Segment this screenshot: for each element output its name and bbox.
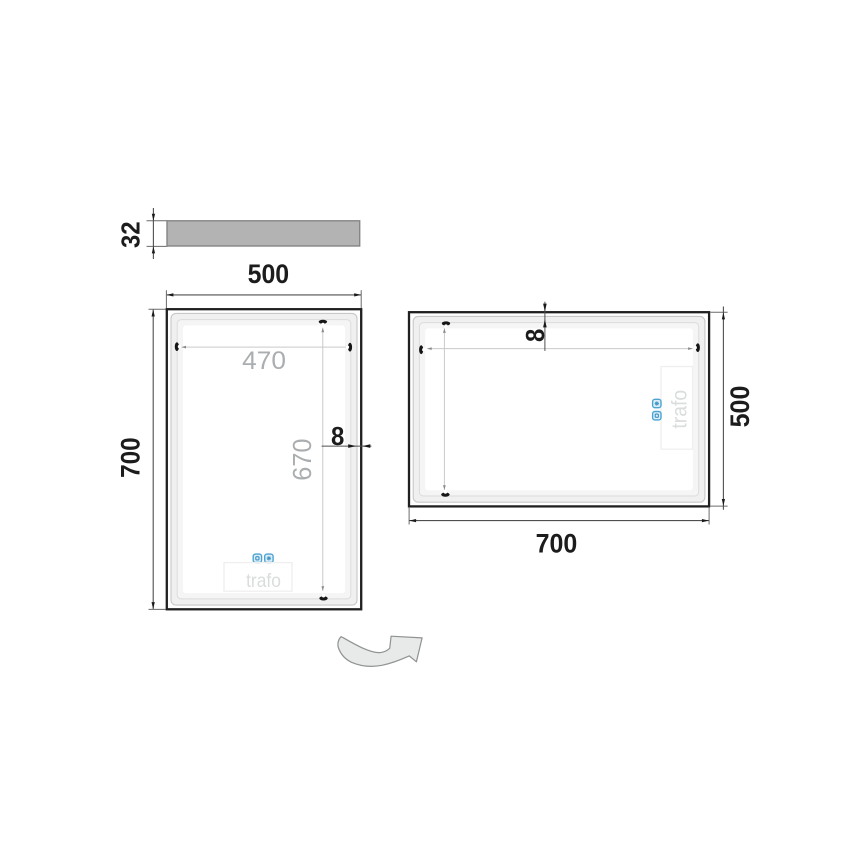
svg-text:32: 32 [116, 221, 146, 248]
svg-text:470: 470 [242, 348, 286, 375]
svg-text:700: 700 [116, 437, 146, 478]
svg-text:8: 8 [331, 421, 344, 451]
svg-text:trafo: trafo [668, 390, 691, 429]
svg-text:700: 700 [536, 529, 578, 559]
svg-text:trafo: trafo [246, 570, 281, 592]
svg-text:670: 670 [287, 439, 317, 481]
svg-text:8: 8 [520, 329, 550, 342]
svg-text:500: 500 [725, 386, 755, 428]
svg-text:500: 500 [248, 259, 290, 289]
